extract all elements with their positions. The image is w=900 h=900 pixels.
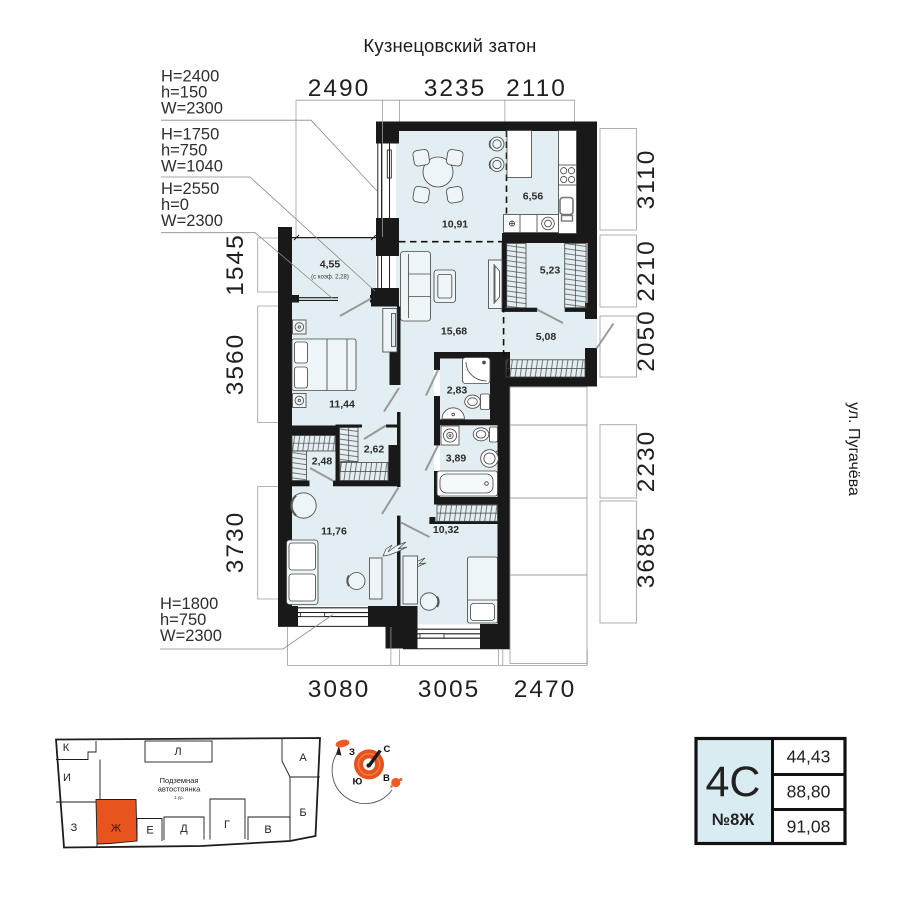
svg-text:1 ур.: 1 ур. — [174, 795, 184, 800]
svg-text:В: В — [264, 824, 271, 836]
svg-text:1545: 1545 — [222, 233, 249, 296]
svg-text:автостоянка: автостоянка — [158, 785, 201, 794]
svg-text:10,91: 10,91 — [442, 219, 468, 231]
svg-text:2490: 2490 — [308, 75, 371, 102]
svg-text:2,48: 2,48 — [312, 456, 333, 468]
svg-text:3685: 3685 — [633, 526, 660, 589]
svg-text:2210: 2210 — [633, 239, 660, 302]
svg-text:Б: Б — [299, 807, 306, 819]
svg-text:91,08: 91,08 — [787, 817, 831, 837]
svg-text:Ж: Ж — [111, 823, 121, 835]
svg-text:W=2300: W=2300 — [161, 212, 223, 230]
svg-text:Л: Л — [174, 746, 181, 758]
svg-text:3235: 3235 — [424, 75, 487, 102]
svg-text:3005: 3005 — [418, 676, 481, 703]
svg-text:Кузнецовский затон: Кузнецовский затон — [363, 35, 536, 56]
svg-text:6,56: 6,56 — [523, 191, 544, 203]
svg-text:W=2300: W=2300 — [161, 100, 223, 118]
svg-text:№8Ж: №8Ж — [712, 811, 755, 829]
svg-text:2230: 2230 — [633, 430, 660, 493]
svg-text:W=2300: W=2300 — [160, 627, 222, 645]
svg-text:З: З — [71, 822, 78, 834]
svg-text:44,43: 44,43 — [787, 747, 831, 767]
svg-text:Д: Д — [180, 823, 188, 835]
svg-text:4,55: 4,55 — [320, 259, 341, 271]
svg-text:2470: 2470 — [514, 676, 577, 703]
svg-text:И: И — [63, 772, 71, 784]
svg-text:5,23: 5,23 — [540, 265, 561, 277]
svg-text:Е: Е — [146, 825, 153, 837]
svg-text:ул. Пугачёва: ул. Пугачёва — [845, 402, 862, 496]
svg-text:2110: 2110 — [506, 75, 567, 102]
svg-text:10,32: 10,32 — [433, 524, 459, 536]
svg-text:К: К — [63, 742, 70, 754]
svg-text:С: С — [384, 744, 391, 755]
svg-text:Г: Г — [224, 819, 230, 831]
svg-text:А: А — [299, 752, 307, 764]
svg-text:88,80: 88,80 — [787, 782, 831, 802]
svg-text:3,89: 3,89 — [446, 453, 467, 465]
svg-text:W=1040: W=1040 — [161, 158, 223, 176]
svg-text:11,76: 11,76 — [321, 526, 347, 538]
svg-text:5,08: 5,08 — [536, 331, 557, 343]
svg-text:3080: 3080 — [308, 676, 371, 703]
svg-text:(с коэф. 2,28): (с коэф. 2,28) — [311, 275, 349, 281]
svg-text:З: З — [349, 747, 355, 758]
svg-text:15,68: 15,68 — [441, 326, 467, 338]
svg-text:2,62: 2,62 — [364, 444, 385, 456]
svg-text:3730: 3730 — [222, 511, 249, 574]
svg-text:2,83: 2,83 — [447, 385, 468, 397]
svg-text:Ю: Ю — [353, 777, 363, 788]
svg-text:В: В — [383, 773, 390, 784]
svg-text:3560: 3560 — [222, 333, 249, 396]
svg-text:2050: 2050 — [633, 309, 660, 372]
svg-text:3110: 3110 — [633, 149, 660, 210]
svg-text:11,44: 11,44 — [329, 399, 355, 411]
svg-text:4С: 4С — [706, 758, 761, 806]
